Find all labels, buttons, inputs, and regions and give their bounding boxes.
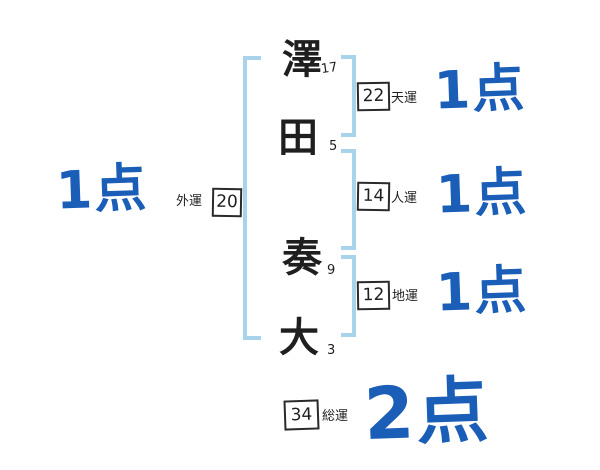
- name-fortune-chart: 1点 外運 20 澤 17 田 5 奏 9 大 3 22 天運 1点 14 人運…: [0, 0, 600, 470]
- tenun-label: 天運: [391, 92, 417, 105]
- stroke-count-1: 17: [320, 61, 338, 76]
- name-character-3: 奏: [278, 238, 326, 278]
- stroke-count-2: 5: [329, 140, 337, 153]
- chiun-value-box: 12: [357, 281, 391, 311]
- jinun-bracket: [341, 149, 356, 250]
- tenun-score: 1点: [433, 62, 527, 117]
- souun-label: 総運: [322, 410, 348, 423]
- souun-score: 2点: [363, 374, 492, 450]
- name-character-4: 大: [275, 318, 323, 358]
- chiun-score: 1点: [435, 264, 529, 319]
- tenun-bracket: [341, 55, 356, 137]
- jinun-score: 1点: [435, 166, 529, 221]
- name-bracket: [243, 56, 261, 340]
- chiun-bracket: [341, 255, 356, 337]
- stroke-count-3: 9: [327, 264, 335, 277]
- tenun-value-box: 22: [357, 82, 391, 112]
- gaiun-value-box: 20: [212, 188, 243, 218]
- gaiun-score: 1点: [55, 162, 149, 217]
- stroke-count-4: 3: [327, 344, 335, 357]
- jinun-value-box: 14: [357, 182, 391, 212]
- name-character-2: 田: [274, 118, 322, 158]
- name-character-1: 澤: [278, 40, 326, 80]
- jinun-label: 人運: [391, 192, 417, 205]
- gaiun-label: 外運: [176, 195, 202, 208]
- chiun-label: 地運: [392, 290, 418, 303]
- souun-value-box: 34: [283, 399, 319, 430]
